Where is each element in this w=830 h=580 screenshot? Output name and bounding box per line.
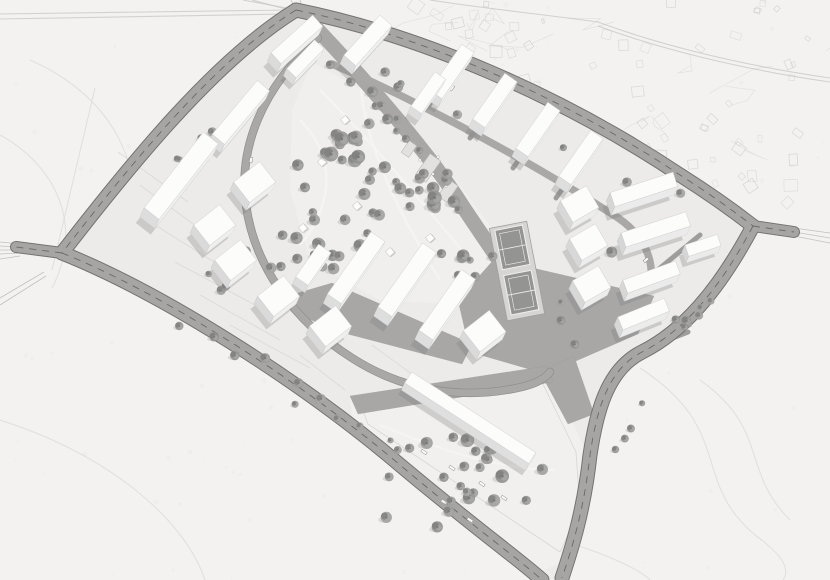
- tree-core: [479, 466, 481, 468]
- tree-core: [397, 118, 399, 120]
- tree-core: [624, 438, 626, 440]
- tree-core: [475, 450, 477, 452]
- speckle-dot: [234, 36, 236, 38]
- tree-core: [493, 499, 496, 502]
- speckle-dot: [15, 82, 18, 85]
- tree-core: [294, 403, 296, 405]
- speckle-dot: [126, 144, 131, 149]
- tree-core: [270, 267, 272, 269]
- tree-core: [561, 302, 562, 303]
- speckle-dot: [501, 63, 504, 66]
- tree-core: [409, 205, 411, 207]
- tree-core: [680, 192, 682, 194]
- speckle-dot: [15, 459, 17, 461]
- speckle-dot: [167, 55, 169, 57]
- speckle-dot: [112, 575, 114, 577]
- speckle-dot: [465, 570, 467, 572]
- tree-core: [378, 214, 380, 216]
- speckle-dot: [239, 473, 242, 476]
- tree-core: [610, 251, 612, 253]
- tree-core: [336, 418, 338, 420]
- tree-core: [458, 209, 460, 211]
- tree-core: [372, 212, 374, 214]
- speckle-dot: [154, 499, 159, 504]
- speckle-dot: [269, 405, 274, 410]
- tree-core: [468, 497, 471, 500]
- tree-core: [443, 476, 445, 478]
- tree-core: [350, 81, 352, 83]
- speckle-dot: [199, 384, 204, 389]
- tree-core: [445, 179, 447, 181]
- speckle-dot: [760, 178, 765, 183]
- tree-core: [331, 254, 334, 257]
- speckle-dot: [78, 166, 83, 171]
- tree-core: [492, 255, 494, 257]
- tree-core: [341, 159, 343, 161]
- tree-core: [297, 164, 300, 167]
- tree-core: [371, 91, 373, 93]
- tree-core: [474, 276, 476, 278]
- tree-core: [423, 173, 425, 175]
- tree-core: [179, 159, 180, 160]
- masterplan-rendering-stage: [0, 0, 830, 580]
- speckle-dot: [42, 473, 44, 475]
- site-plan-aerial-rendering: [0, 0, 830, 580]
- speckle-dot: [626, 418, 629, 421]
- tree-core: [386, 118, 388, 120]
- tree-core: [384, 71, 386, 73]
- tree-core: [234, 354, 236, 356]
- tree-core: [626, 181, 628, 183]
- tree-core: [425, 442, 428, 445]
- speckle-dot: [727, 294, 732, 299]
- tree-core: [408, 192, 410, 194]
- tree-core: [390, 440, 391, 441]
- tree-core: [295, 237, 298, 240]
- tree-core: [541, 468, 543, 470]
- tree-core: [344, 219, 346, 221]
- tree-core: [280, 265, 282, 267]
- speckle-dot: [491, 1, 494, 4]
- speckle-dot: [225, 466, 228, 469]
- tree-core: [312, 211, 314, 213]
- tree-core: [563, 147, 565, 149]
- tree-core: [710, 300, 712, 302]
- tree-core: [396, 130, 398, 132]
- tree-core: [685, 320, 687, 322]
- tree-core: [213, 336, 215, 338]
- tree-core: [525, 499, 527, 501]
- tree-core: [418, 189, 420, 191]
- tree-core: [355, 135, 358, 138]
- tree-core: [363, 193, 366, 196]
- tree-core: [630, 428, 632, 430]
- tree-core: [675, 319, 677, 321]
- speckle-dot: [547, 44, 549, 46]
- tree-core: [436, 526, 438, 528]
- tree-core: [405, 138, 407, 140]
- speckle-dot: [667, 371, 670, 374]
- tree-core: [462, 254, 465, 257]
- speckle-dot: [23, 354, 27, 358]
- speckle-dot: [30, 357, 34, 361]
- tree-core: [320, 398, 322, 400]
- tree-core: [388, 476, 390, 478]
- tree-core: [329, 64, 331, 66]
- speckle-dot: [770, 26, 775, 31]
- speckle-dot: [110, 341, 114, 345]
- speckle-dot: [792, 406, 796, 410]
- tree-core: [448, 510, 450, 512]
- tree-core: [432, 187, 435, 190]
- tree-core: [463, 465, 465, 467]
- tree-core: [446, 173, 448, 175]
- speckle-dot: [402, 570, 406, 574]
- tree-core: [313, 219, 315, 221]
- tree-core: [469, 259, 471, 261]
- tree-core: [684, 326, 686, 328]
- speckle-dot: [822, 141, 824, 143]
- tree-core: [460, 485, 462, 487]
- tree-core: [397, 449, 399, 451]
- tree-core: [338, 255, 340, 257]
- tree-core: [385, 516, 387, 518]
- playground-equipment: [432, 173, 435, 176]
- speckle-dot: [51, 352, 54, 355]
- tree-core: [368, 123, 370, 125]
- tree-core: [395, 181, 397, 183]
- tree-core: [466, 491, 468, 493]
- tree-core: [453, 200, 456, 203]
- tree-core: [574, 343, 576, 345]
- speckle-dot: [515, 47, 519, 51]
- tree-core: [641, 403, 642, 404]
- speckle-dot: [503, 2, 508, 7]
- tree-core: [178, 325, 180, 327]
- speckle-dot: [203, 457, 205, 459]
- tree-core: [450, 500, 452, 502]
- speckle-dot: [709, 489, 713, 493]
- tree-core: [359, 425, 361, 427]
- tree-core: [698, 315, 700, 317]
- tree-core: [456, 114, 458, 116]
- tree-core: [487, 459, 489, 461]
- tree-core: [264, 357, 266, 359]
- speckle-dot: [547, 6, 550, 9]
- tree-core: [357, 155, 360, 158]
- tree-core: [452, 436, 454, 438]
- speckle-dot: [773, 508, 776, 511]
- speckle-dot: [243, 443, 245, 445]
- playground-equipment: [419, 159, 422, 162]
- tree-core: [372, 171, 374, 173]
- tree-core: [419, 150, 421, 152]
- speckle-dot: [16, 440, 19, 443]
- speckle-dot: [290, 439, 293, 442]
- speckle-dot: [817, 156, 820, 159]
- speckle-dot: [248, 519, 251, 522]
- tree-core: [381, 105, 383, 107]
- tree-core: [332, 267, 335, 270]
- speckle-dot: [166, 455, 171, 460]
- tree-core: [409, 447, 411, 449]
- playground-equipment: [437, 156, 440, 159]
- tree-core: [369, 179, 371, 181]
- tree-core: [296, 258, 298, 260]
- tree-core: [560, 319, 562, 321]
- speckle-dot: [32, 129, 37, 134]
- tree-core: [304, 186, 306, 188]
- speckle-dot: [536, 46, 538, 48]
- speckle-dot: [231, 471, 235, 475]
- tree-core: [615, 449, 617, 451]
- speckle-dot: [642, 562, 644, 564]
- speckle-dot: [114, 45, 117, 48]
- tree-core: [700, 307, 702, 309]
- speckle-dot: [739, 81, 743, 85]
- tree-core: [433, 196, 436, 199]
- speckle-dot: [188, 450, 193, 455]
- tree-core: [383, 166, 386, 169]
- speckle-dot: [172, 569, 175, 572]
- tree-core: [282, 234, 284, 236]
- tree-core: [399, 187, 402, 190]
- tree-core: [440, 253, 442, 255]
- speckle-dot: [706, 565, 710, 569]
- speckle-dot: [262, 378, 267, 383]
- tree-core: [298, 382, 300, 384]
- speckle-dot: [178, 502, 182, 506]
- tree-core: [340, 137, 343, 140]
- tree-core: [329, 152, 332, 155]
- tree-core: [367, 232, 369, 234]
- speckle-dot: [323, 494, 327, 498]
- speckle-dot: [89, 169, 93, 173]
- tree-core: [501, 475, 504, 478]
- tree-core: [400, 83, 402, 85]
- car: [249, 157, 253, 163]
